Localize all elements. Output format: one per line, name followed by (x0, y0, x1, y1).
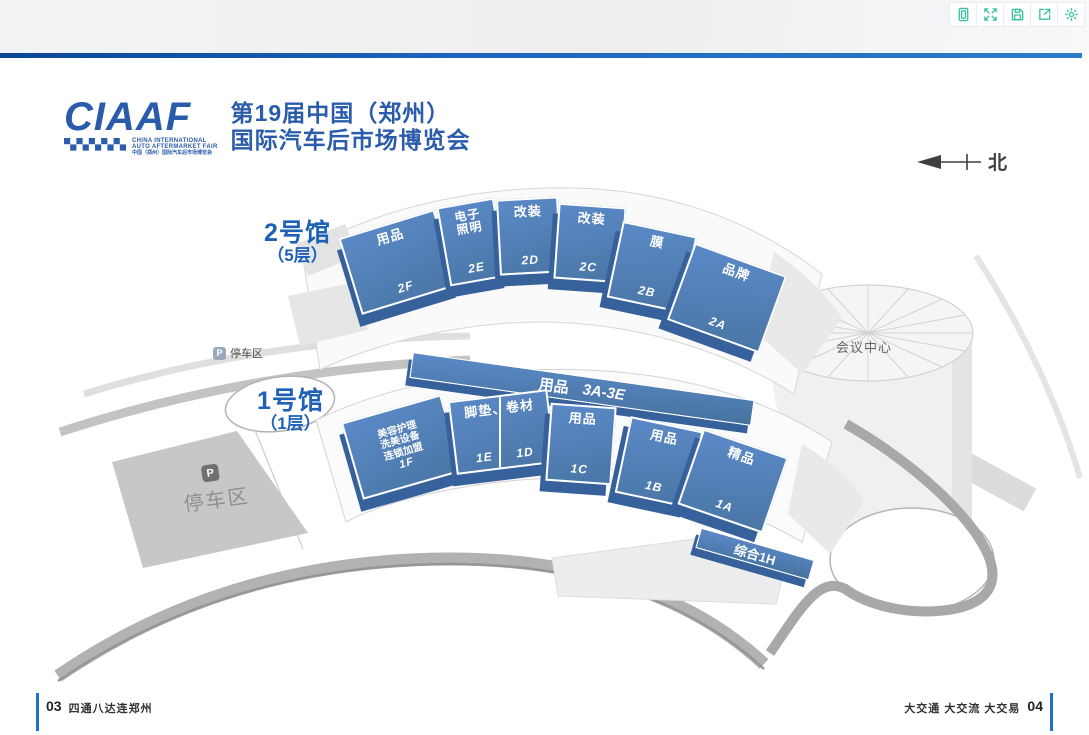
compass: 北 (915, 148, 1007, 175)
reader-icon[interactable] (949, 2, 977, 27)
layout-slide: 总体布局图 CIAAF (0, 0, 1089, 735)
road-far-right (976, 256, 1080, 478)
logo-tagline-cn: 中国（郑州）国际汽车后市场博览会 (132, 150, 218, 156)
settings-icon[interactable] (1058, 2, 1085, 27)
logo-wordmark: CIAAF (64, 98, 218, 136)
header-band (0, 0, 1089, 53)
logo-tagline: CHINA INTERNATIONAL AUTO AFTERMARKET FAI… (132, 138, 218, 156)
header-divider (0, 53, 1082, 58)
expo-title-line2: 国际汽车后市场博览会 (231, 127, 471, 154)
checker-flag-icon (64, 138, 128, 151)
footer-left: 03 四通八达连郑州 (36, 693, 153, 731)
viewer-toolbar (949, 2, 1085, 27)
footer-right: 大交通 大交流 大交易 04 (904, 693, 1053, 731)
expo-title: 第19届中国（郑州） 国际汽车后市场博览会 (231, 100, 471, 156)
footer-page-number-right: 04 (1027, 698, 1043, 714)
fullscreen-icon[interactable] (977, 2, 1004, 27)
footer-right-bar (1050, 693, 1053, 731)
road-right-u-tail (770, 586, 845, 653)
footer-slogan-right: 大交通 大交流 大交易 (904, 700, 1020, 716)
north-arrow-icon (915, 150, 983, 174)
conference-wall (952, 334, 972, 530)
compass-label: 北 (988, 148, 1007, 175)
footer-slogan-left: 四通八达连郑州 (69, 700, 153, 716)
strip1h-platform (552, 538, 784, 604)
parking-lot-area (112, 431, 308, 568)
hall1-platform (316, 369, 832, 542)
expo-logo: CIAAF CHINA INTERNATIONAL AUTO AFTERMARK… (64, 98, 471, 156)
logo-left: CIAAF CHINA INTERNATIONAL AUTO AFTERMARK… (64, 98, 218, 156)
footer-page-number-left: 03 (46, 698, 62, 714)
share-icon[interactable] (1031, 2, 1058, 27)
save-icon[interactable] (1004, 2, 1031, 27)
footer-left-bar (36, 693, 39, 731)
expo-title-line1: 第19届中国（郑州） (231, 100, 471, 127)
